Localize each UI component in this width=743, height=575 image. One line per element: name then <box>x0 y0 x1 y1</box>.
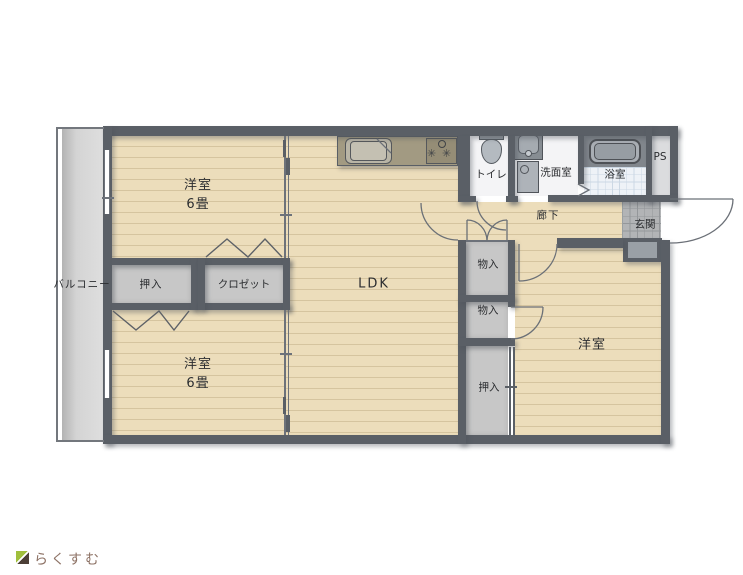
oshiire-right-sliding-line <box>509 347 511 435</box>
wall-hallway-bedroom <box>557 238 623 248</box>
shoe-cabinet-top <box>628 242 657 258</box>
label-bedroom-tl: 洋室 6畳 <box>184 176 212 214</box>
wall-ldk-toilet <box>458 136 470 202</box>
label-entrance: 玄関 <box>635 217 656 232</box>
oshiire-left-wall-right <box>191 258 198 310</box>
closet-wall-left <box>198 258 205 310</box>
window-bedroom-tl <box>104 150 110 214</box>
label-washroom: 洗面室 <box>540 165 572 180</box>
closet-wall-right <box>283 258 290 310</box>
label-oshiire-right: 押入 <box>479 380 500 395</box>
outer-wall-top <box>103 126 678 136</box>
wall-sanitary-bottom-a <box>458 196 476 202</box>
washbasin-faucet-icon <box>525 150 532 157</box>
storage-divider-2 <box>458 338 515 346</box>
wall-bath-ps <box>646 126 652 202</box>
window-bedroom-bl <box>104 350 110 398</box>
partition-cross-tick <box>280 214 292 216</box>
wall-washroom-bath <box>578 136 584 184</box>
label-bedroom-bl: 洋室 6畳 <box>184 355 212 393</box>
sliding-door-tick <box>286 158 290 175</box>
window-tick <box>102 197 114 199</box>
rakusumu-logo-text: らくすむ <box>34 549 102 569</box>
stove-burner-icon: ✳ <box>442 147 451 160</box>
stove-burner-icon: ✳ <box>427 147 436 160</box>
oshiire-right-handle-tick <box>505 386 517 388</box>
label-bedroom-right: 洋室 <box>578 334 606 353</box>
label-ldk: LDK <box>358 277 390 292</box>
washing-machine-faucet-icon <box>520 165 529 174</box>
closet-wall-bottom <box>198 303 290 310</box>
oshiire-left-wall-top <box>112 258 198 265</box>
rakusumu-logo-icon <box>16 551 29 564</box>
entrance-door-swing <box>670 199 733 243</box>
entrance-edge-line <box>622 202 623 238</box>
storage-upper-right-wall <box>508 240 515 302</box>
label-closet: クロゼット <box>218 277 271 292</box>
sliding-door-tick <box>283 397 287 414</box>
oshiire-left-wall-bottom <box>112 303 198 310</box>
oshiire-right-sliding-line <box>513 347 515 435</box>
label-storage-upper: 物入 <box>478 257 499 272</box>
closet-wall-top <box>198 258 290 265</box>
room-size: 6畳 <box>184 374 212 393</box>
balcony-rail-top <box>56 127 104 129</box>
label-ps: PS <box>654 151 667 163</box>
ps-floor <box>652 136 670 195</box>
floor-plan: ✳ ✳ <box>0 0 743 575</box>
label-hallway: 廊下 <box>537 208 560 223</box>
label-storage-lower: 物入 <box>478 303 499 318</box>
wall-sanitary-bottom-c <box>548 195 678 202</box>
label-balcony: バルコニー <box>53 277 110 292</box>
room-size: 6畳 <box>184 195 212 214</box>
storage-lower-right-stub <box>508 302 515 307</box>
balcony-rail-bottom <box>56 440 104 442</box>
sliding-door-tick <box>286 415 290 432</box>
outer-wall-bottom <box>103 435 670 444</box>
bathtub-inner <box>594 143 636 160</box>
room-name: 洋室 <box>184 176 212 195</box>
label-oshiire-left: 押入 <box>140 277 163 292</box>
wall-toilet-washroom <box>508 136 515 202</box>
storage-upper-door-line <box>466 240 508 242</box>
storage-divider-1 <box>458 295 515 302</box>
outer-wall-right <box>661 240 670 444</box>
partition-line <box>288 136 290 258</box>
label-toilet: トイレ <box>475 167 507 182</box>
ps-outer-wall <box>670 126 678 202</box>
label-bathroom: 浴室 <box>605 167 626 182</box>
kitchen-sink-basin <box>350 141 387 161</box>
wall-sanitary-bottom-b <box>506 196 518 202</box>
partition-cross-tick <box>280 353 292 355</box>
room-name: 洋室 <box>184 355 212 374</box>
sliding-door-tick <box>283 140 287 157</box>
